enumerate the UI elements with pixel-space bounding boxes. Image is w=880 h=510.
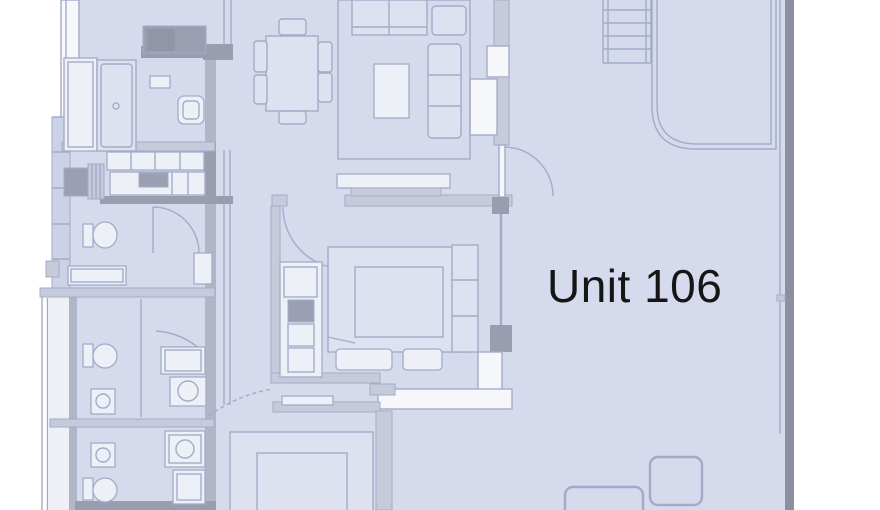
dining-chair — [254, 41, 267, 72]
floor-plan-page: Unit 106 — [0, 0, 880, 510]
tv — [351, 188, 441, 196]
appliance — [139, 173, 168, 187]
wall-niche — [487, 46, 509, 77]
dining-chair — [279, 111, 306, 124]
floor-plan-drawing: Unit 106 — [0, 0, 880, 510]
bed — [328, 247, 468, 352]
sink-cabinet — [91, 389, 115, 414]
wall-pier — [46, 261, 59, 277]
dining-chair — [318, 73, 332, 102]
vanity-counter — [64, 58, 97, 151]
dining-chair — [279, 19, 306, 35]
built-in-shelf — [452, 245, 478, 352]
side-walkway — [48, 295, 72, 510]
toilet-tank — [83, 344, 93, 367]
right-exterior-wall — [777, 0, 794, 510]
sink — [150, 76, 170, 88]
dryer — [165, 431, 205, 467]
toilet-bowl — [93, 478, 117, 502]
toilet-bowl — [93, 344, 117, 368]
closet-unit — [173, 470, 205, 504]
coffee-table — [374, 64, 409, 118]
bed-pillow — [403, 349, 442, 370]
dining-table — [266, 36, 318, 111]
dining-chair — [254, 75, 267, 104]
armchair — [432, 6, 466, 35]
door-leaf — [499, 145, 505, 197]
wall-shelf — [282, 396, 333, 405]
shower-stall — [97, 60, 136, 151]
chaise — [428, 44, 461, 138]
sliding-wall — [378, 389, 512, 409]
bed — [230, 432, 373, 510]
media-console — [337, 174, 450, 188]
unit-label: Unit 106 — [547, 260, 722, 312]
toilet-tank — [83, 224, 93, 247]
wall-segment — [785, 0, 794, 510]
shaft-block — [64, 168, 88, 196]
bed-pillow — [336, 349, 392, 370]
toilet-tank — [83, 478, 93, 500]
shelf — [194, 253, 212, 284]
door-leaf — [478, 352, 502, 390]
cabinet — [470, 79, 497, 135]
wall-segment — [69, 294, 77, 510]
toilet — [178, 96, 204, 124]
closet-unit — [161, 347, 205, 374]
dining-chair — [318, 42, 332, 72]
toilet-bowl — [93, 222, 117, 248]
sink-cabinet — [91, 443, 115, 467]
